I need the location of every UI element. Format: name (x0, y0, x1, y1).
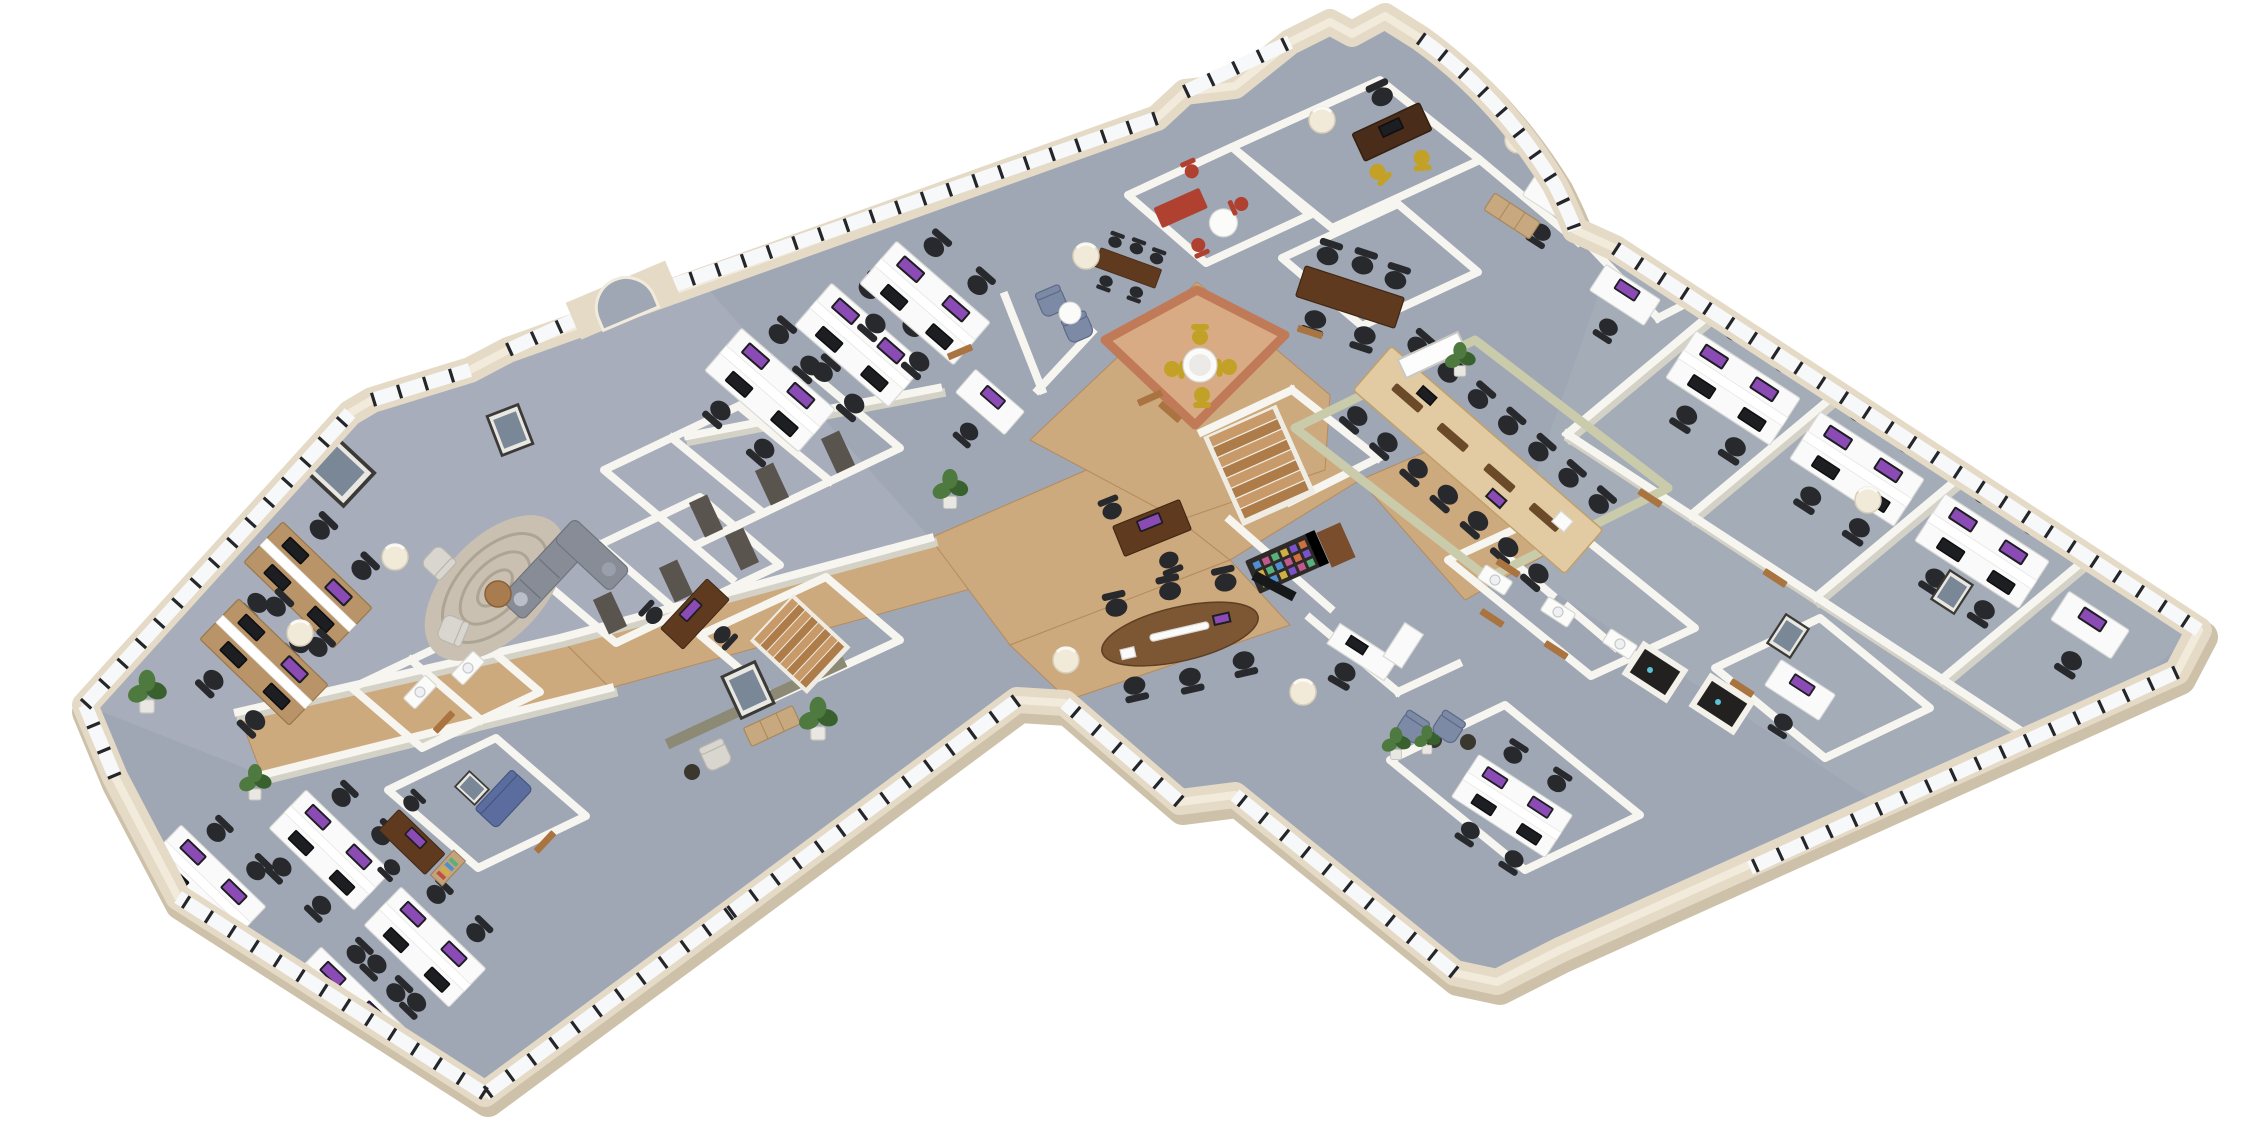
side-table (684, 764, 700, 780)
building (85, 16, 2202, 1101)
round-table (1059, 302, 1081, 324)
floorplan-svg (0, 0, 2268, 1134)
floorplan-canvas (0, 0, 2268, 1134)
coffee-table (485, 581, 511, 607)
side-table (1460, 734, 1476, 750)
